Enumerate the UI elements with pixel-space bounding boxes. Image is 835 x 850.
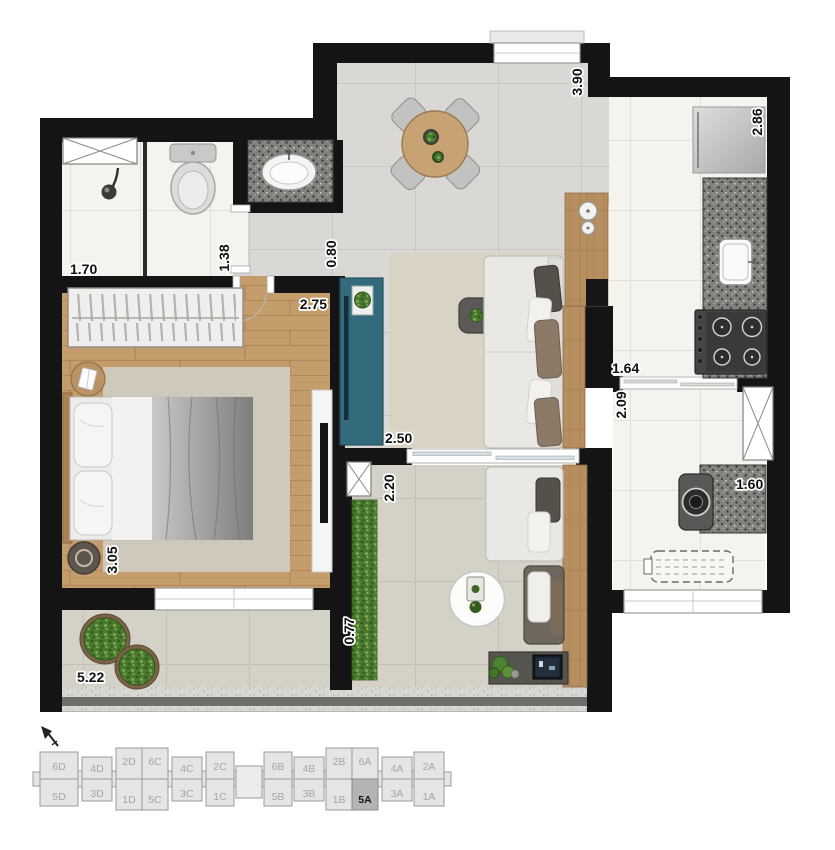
dim-living: 2.50	[385, 430, 412, 446]
drying-rack	[644, 551, 733, 582]
keyplan-core	[236, 766, 262, 798]
keyplan-unit-3C[interactable]: 3C	[180, 788, 194, 800]
floor-pouf	[68, 542, 100, 574]
keyplan-unit-5D[interactable]: 5D	[52, 791, 66, 803]
kitchen-sink	[719, 239, 756, 285]
north-arrow-icon	[41, 726, 58, 746]
washing-machine	[679, 474, 713, 530]
keyplan-unit-5C[interactable]: 5C	[148, 794, 162, 806]
window-sill	[490, 31, 584, 43]
wood-panel-living	[563, 306, 585, 448]
cabinet-plant	[355, 292, 371, 308]
keyplan-unit-2D[interactable]: 2D	[122, 756, 136, 768]
sofa-pillow-brown	[534, 319, 562, 379]
dining-table	[402, 111, 468, 177]
dim-shower: 1.70	[70, 261, 97, 277]
dim-bedroom-depth: 3.05	[104, 546, 120, 573]
keyplan-unit-6B[interactable]: 6B	[272, 761, 285, 773]
vertical-garden-planter	[352, 500, 377, 680]
keyplan-unit-4B[interactable]: 4B	[303, 763, 316, 775]
dim-den: 2.20	[381, 474, 397, 501]
dim-wc: 1.38	[216, 244, 232, 271]
round-side-table	[450, 572, 505, 627]
keyplan-unit-1B[interactable]: 1B	[333, 794, 346, 806]
keyplan-unit-3A[interactable]: 3A	[391, 788, 404, 800]
keyplan-unit-1A[interactable]: 1A	[423, 791, 436, 803]
keyplan-unit-4C[interactable]: 4C	[180, 763, 194, 775]
laundry-window	[624, 590, 762, 613]
living-sofa	[484, 256, 563, 448]
toilet	[170, 144, 216, 214]
den-sofa	[486, 467, 563, 561]
den-pillow-white	[528, 512, 550, 552]
bathroom-door[interactable]	[231, 205, 250, 273]
bedroom-tv-panel	[312, 390, 332, 572]
kitchen-bar	[565, 193, 608, 306]
dim-service-width: 1.60	[736, 476, 763, 492]
balcony-sill	[62, 687, 587, 712]
nightstand	[71, 362, 105, 396]
keyplan-unit-6A[interactable]: 6A	[359, 756, 372, 768]
keyplan-unit-2A[interactable]: 2A	[423, 761, 436, 773]
keyplan-unit-3D[interactable]: 3D	[90, 788, 104, 800]
sofa-pillow-brown	[534, 397, 562, 447]
dim-dining: 3.90	[569, 68, 585, 95]
keyplan-unit-2B[interactable]: 2B	[333, 756, 346, 768]
keyplan: 6D 4D 2D 6C 4C 2C 6B 4B 2B 6A 4A 2A 5D 3…	[33, 748, 451, 810]
bedroom-window	[155, 588, 313, 610]
balcony-tv	[533, 655, 562, 679]
keyplan-unit-6D[interactable]: 6D	[52, 761, 66, 773]
wardrobe	[68, 288, 243, 347]
dim-kitchen-depth: 2.86	[749, 108, 765, 135]
living-tv	[344, 296, 349, 420]
floor-plan-page: 1.70 1.38 0.80 2.75 3.90 2.86 1.64 2.09 …	[0, 0, 835, 850]
keyplan-unit-2C[interactable]: 2C	[213, 761, 227, 773]
dim-bedroom-width: 2.75	[300, 296, 327, 312]
bar-stool	[586, 279, 608, 306]
stove	[695, 310, 766, 374]
keyplan-unit-5B[interactable]: 5B	[272, 791, 285, 803]
bed	[63, 393, 253, 543]
kitchen	[693, 107, 767, 378]
bathroom-sink	[248, 140, 333, 202]
dim-terrace-width: 5.22	[77, 669, 104, 685]
sliding-door-living-den[interactable]	[407, 449, 579, 463]
dim-terrace-depth: 0.77	[341, 617, 357, 644]
floor-plan-canvas: 1.70 1.38 0.80 2.75 3.90 2.86 1.64 2.09 …	[0, 0, 835, 850]
keyplan-unit-5A[interactable]: 5A	[358, 794, 372, 806]
bedroom-tv	[320, 423, 328, 523]
keyplan-unit-1D[interactable]: 1D	[122, 794, 136, 806]
keyplan-unit-6C[interactable]: 6C	[148, 756, 162, 768]
lounge-chair	[524, 566, 564, 644]
keyplan-unit-4D[interactable]: 4D	[90, 763, 104, 775]
tv-cabinet	[340, 278, 383, 445]
dim-hall: 0.80	[323, 240, 339, 267]
dining-window	[494, 43, 580, 63]
dim-kitchen-width: 1.64	[612, 360, 639, 376]
keyplan-unit-3B[interactable]: 3B	[303, 788, 316, 800]
keyplan-unit-4A[interactable]: 4A	[391, 763, 404, 775]
dim-service-depth: 2.09	[613, 391, 629, 418]
balcony-ledge	[489, 652, 568, 684]
sliding-door-kitchen-laundry[interactable]	[620, 377, 737, 389]
keyplan-blocks	[40, 748, 444, 810]
keyplan-unit-1C[interactable]: 1C	[213, 791, 227, 803]
